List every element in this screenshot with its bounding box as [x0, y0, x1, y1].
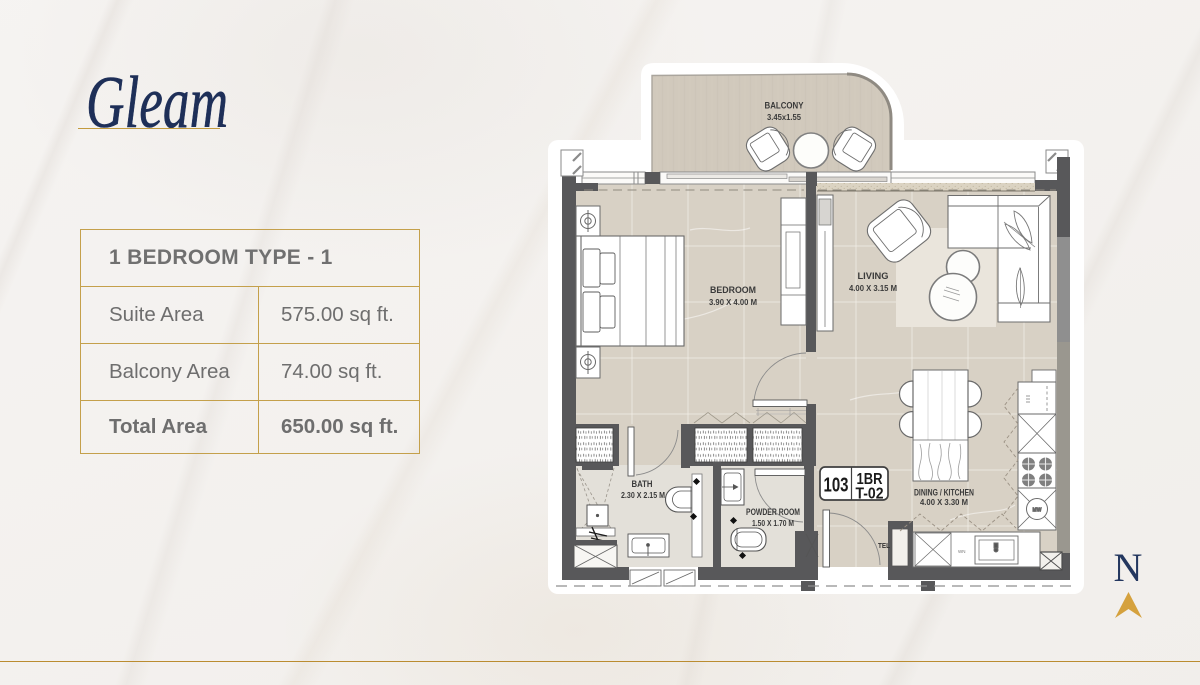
svg-text:2.30 X 2.15 M: 2.30 X 2.15 M — [621, 490, 665, 500]
svg-text:TEL: TEL — [878, 541, 890, 550]
svg-text:BATH: BATH — [632, 479, 653, 489]
svg-text:LIVING: LIVING — [858, 271, 889, 281]
svg-text:T-02: T-02 — [856, 486, 884, 503]
svg-text:DINING / KITCHEN: DINING / KITCHEN — [914, 488, 974, 498]
svg-text:BEDROOM: BEDROOM — [710, 285, 756, 295]
svg-text:3.45x1.55: 3.45x1.55 — [767, 112, 801, 122]
svg-text:BALCONY: BALCONY — [765, 101, 804, 111]
svg-text:MW: MW — [1033, 508, 1042, 514]
svg-text:POWDER ROOM: POWDER ROOM — [746, 507, 800, 517]
svg-text:WN: WN — [958, 549, 966, 554]
svg-text:4.00 X 3.30 M: 4.00 X 3.30 M — [920, 497, 968, 507]
svg-text:4.00 X 3.15 M: 4.00 X 3.15 M — [849, 283, 897, 293]
svg-text:1.50 X 1.70 M: 1.50 X 1.70 M — [752, 518, 794, 528]
svg-text:3.90 X 4.00 M: 3.90 X 4.00 M — [709, 297, 757, 307]
svg-text:103: 103 — [824, 475, 849, 497]
